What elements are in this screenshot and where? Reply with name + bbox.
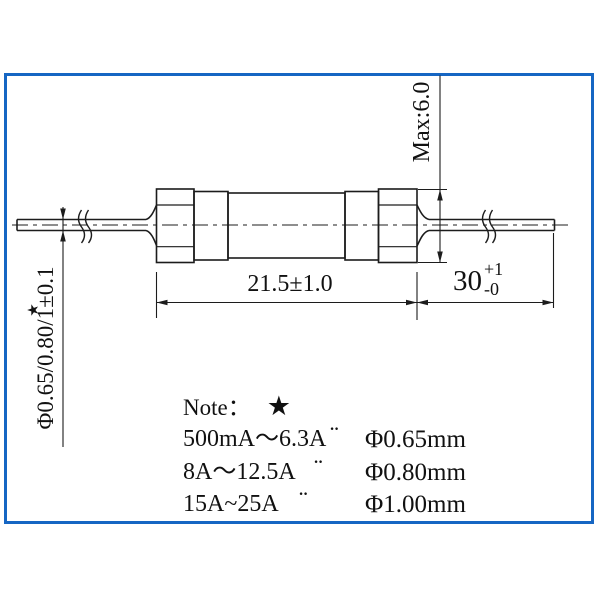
note-row: 8A～12.5A ¨ Φ0.80mm (183, 457, 483, 490)
note-row: 500mA～6.3A ¨ Φ0.65mm (183, 424, 483, 457)
lead-length-tolerance-plus: +1 (484, 259, 503, 279)
break-symbol-left (79, 210, 92, 243)
current-range: 8A～12.5A (183, 457, 296, 488)
wire-diameter: Φ0.80mm (365, 457, 466, 488)
note-row: 15A~25A ¨ Φ1.00mm (183, 489, 483, 522)
note-block: Note： ★ 500mA～6.3A ¨ Φ0.65mm 8A～12.5A ¨ … (183, 391, 483, 524)
note-star-icon: ★ (267, 391, 291, 421)
lead-length-label: 30 +1 -0 (453, 265, 503, 305)
ditto-mark-icon: ¨ (314, 453, 324, 484)
technical-drawing-canvas: Max:6.0 21.5±1.0 30 +1 -0 Φ0.65/0.80/1±0… (0, 0, 600, 600)
lead-length-tolerance: +1 -0 (484, 259, 503, 299)
dim-lead-diameter-lines (60, 207, 66, 447)
body-length-label: 21.5±1.0 (240, 271, 340, 297)
wire-diameter: Φ0.65mm (365, 424, 466, 455)
wire-diameter: Φ1.00mm (365, 489, 466, 520)
current-range: 500mA～6.3A (183, 424, 326, 455)
current-range: 15A~25A (183, 489, 279, 520)
break-symbol-right (483, 210, 496, 243)
lead-length-tolerance-minus: -0 (484, 279, 503, 299)
left-cap (157, 189, 229, 263)
lead-diameter-label: Φ0.65/0.80/1±0.1 (32, 238, 60, 458)
lead-length-value: 30 (453, 265, 482, 297)
star-marker-icon: ★ (26, 302, 42, 318)
note-title-text: Note： (183, 395, 251, 420)
ditto-mark-icon: ¨ (299, 485, 309, 516)
cap-diameter-label: Max:6.0 (408, 72, 436, 172)
ditto-mark-icon: ¨ (330, 420, 340, 451)
right-cap (345, 189, 417, 263)
note-title: Note： ★ (183, 391, 291, 423)
